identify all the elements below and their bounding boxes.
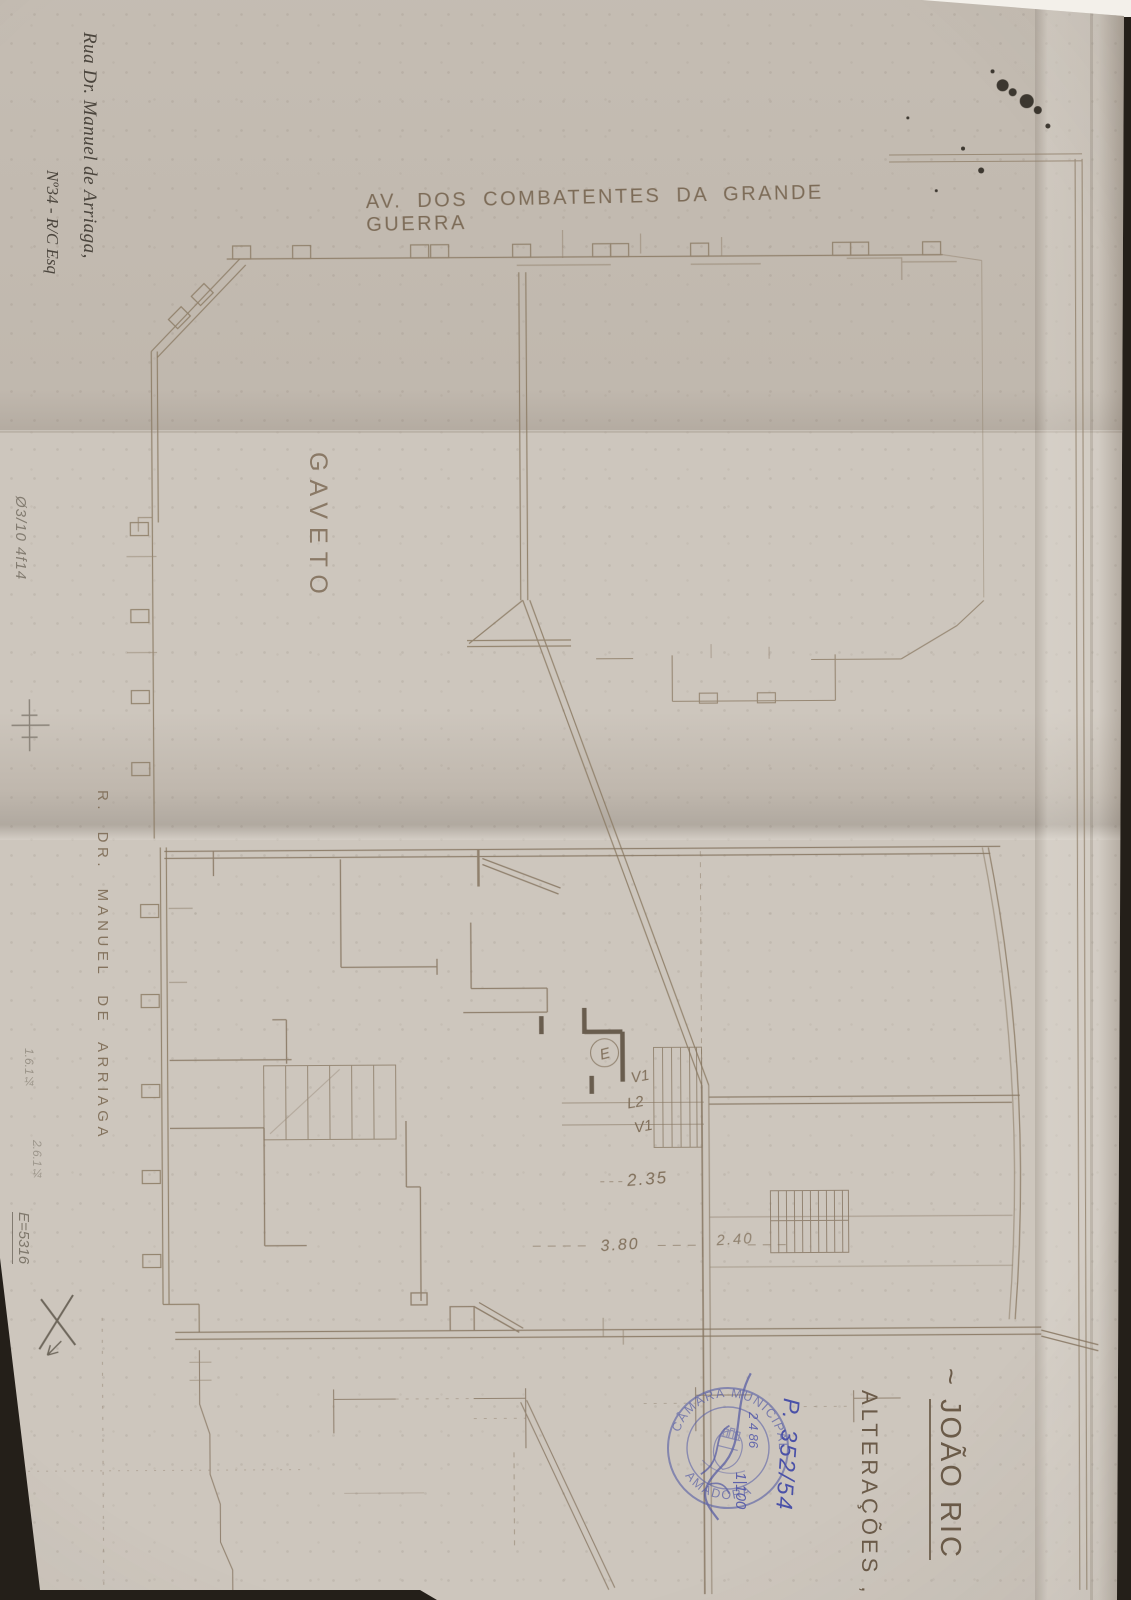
street-name-left: R. DR. MANUEL DE ARRIAGA: [94, 790, 111, 1141]
ink-blots: [906, 69, 1051, 192]
l2-label: L2: [626, 1093, 646, 1113]
dim-2-40: 2.40: [715, 1230, 754, 1249]
v1-bottom-label: V1: [633, 1117, 654, 1137]
v1-top-label: V1: [629, 1067, 650, 1087]
left-facade: [125, 351, 199, 1332]
drawing-title: ~ JOÃO RIC: [933, 1368, 966, 1560]
gaveto-label: GAVETO: [303, 452, 332, 602]
address-line-1: Rua Dr. Manuel de Arriaga,: [78, 32, 100, 259]
stair-b: [654, 1047, 703, 1147]
chamfer-corner: [151, 259, 247, 358]
floor-plan-drawing: E V1 L2 V1 2.35 3.80 2.40: [0, 0, 1131, 1600]
dim-3-80: 3.80: [600, 1236, 640, 1255]
dim-2-35: 2.35: [625, 1168, 668, 1190]
pencil-note-top-left: Ø3/10 4f14: [12, 496, 29, 580]
pencil-x-mark: [39, 1295, 75, 1355]
top-facade: [227, 227, 984, 602]
lower-block-walls: [164, 846, 1023, 1597]
stair-c: [770, 1190, 848, 1252]
pencil-note-3: E=5316: [12, 1212, 32, 1264]
title-tilde: ~: [934, 1368, 966, 1399]
pencil-note-1: 1.6.1¼: [22, 1048, 36, 1089]
right-boundary-curve: [982, 847, 1021, 1319]
title-name: JOÃO RIC: [929, 1399, 966, 1560]
upper-bay: [596, 600, 985, 703]
pencil-note-2: 2.6.1¼: [30, 1140, 44, 1181]
elevator-label: E: [598, 1044, 613, 1063]
address-line-2: Nº34 - R/C Esq: [42, 170, 62, 274]
drawing-subtitle: ALTERAÇÕES ,: [856, 1390, 882, 1597]
sheet-border-lines: [889, 154, 1091, 1591]
bottom-facade: [175, 1299, 1098, 1357]
pencil-cross-mark: [11, 699, 49, 751]
stair-a: [264, 1065, 396, 1140]
scanned-document: E V1 L2 V1 2.35 3.80 2.40 AV. DOS COMBAT…: [0, 0, 1131, 1600]
date-note: 2 4 86: [746, 1412, 761, 1448]
paper-sheet: E V1 L2 V1 2.35 3.80 2.40 AV. DOS COMBAT…: [0, 0, 1131, 1600]
scale-note: 1|100: [732, 1472, 749, 1509]
